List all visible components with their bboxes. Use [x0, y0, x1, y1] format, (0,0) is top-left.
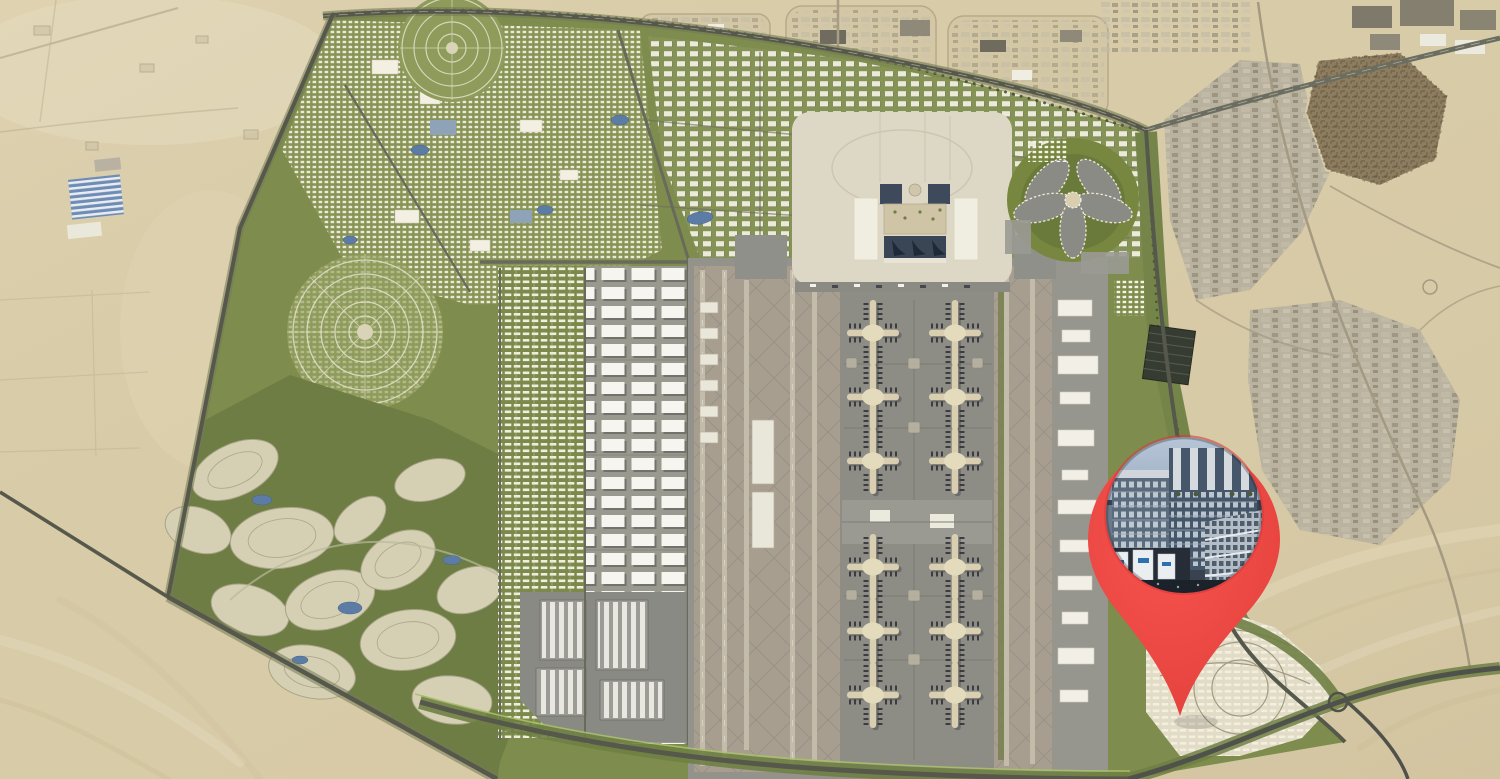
airport [688, 258, 1108, 779]
terminal-curbside [795, 282, 1010, 292]
strip-village [1114, 280, 1144, 316]
map-canvas [0, 0, 1500, 779]
warehouse-complex [520, 592, 700, 742]
palm-district [1005, 138, 1139, 274]
masterplan-map [0, 0, 1500, 779]
terminal-parking-west [735, 235, 787, 279]
pin-shadow [1174, 715, 1218, 729]
